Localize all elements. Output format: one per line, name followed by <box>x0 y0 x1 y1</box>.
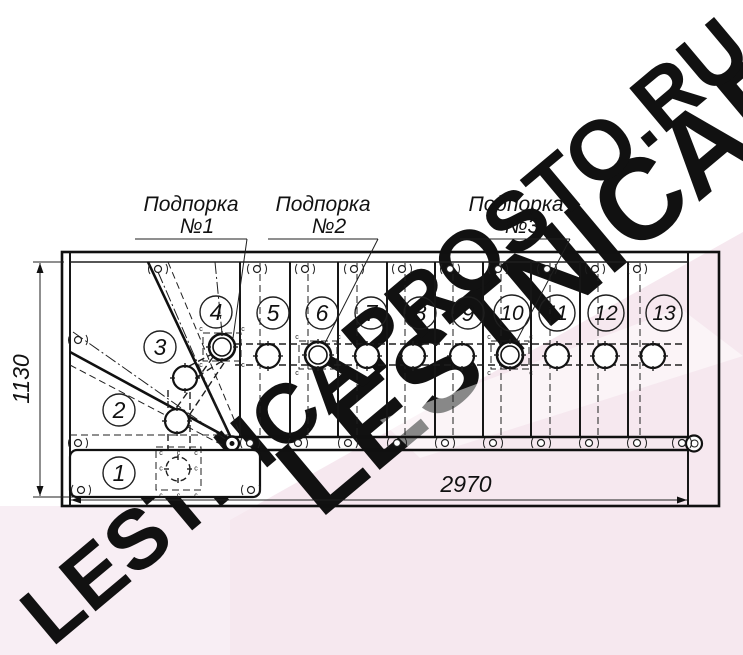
svg-text:2: 2 <box>112 397 126 423</box>
c-mark: c <box>194 493 198 500</box>
c-mark: c <box>487 334 491 341</box>
c-mark: c <box>529 370 533 377</box>
c-mark: c <box>159 466 163 473</box>
width-dimension-value: 2970 <box>439 471 491 497</box>
c-mark: c <box>295 334 299 341</box>
svg-text:4: 4 <box>210 299 223 325</box>
c-mark: c <box>177 493 181 500</box>
svg-text:10: 10 <box>500 302 524 325</box>
c-mark: c <box>337 370 341 377</box>
c-mark: c <box>487 370 491 377</box>
c-mark: c <box>159 493 163 500</box>
svg-text:9: 9 <box>462 300 475 326</box>
svg-text:Подпорка: Подпорка <box>468 193 563 216</box>
svg-text:№3: №3 <box>505 215 540 238</box>
c-mark: c <box>337 334 341 341</box>
c-mark: c <box>194 466 198 473</box>
staircase-plan-page: LESTNICAPROSTO.RU LESTNICAPROSTO.RU <box>0 0 743 655</box>
c-mark: c <box>241 362 245 369</box>
c-mark: c <box>159 450 163 457</box>
svg-text:5: 5 <box>267 300 280 326</box>
c-mark: c <box>199 326 203 333</box>
height-dimension-value: 1130 <box>8 354 34 404</box>
svg-text:№1: №1 <box>180 215 214 238</box>
c-mark: c <box>241 326 245 333</box>
staircase-plan-drawing: LESTNICAPROSTO.RU LESTNICAPROSTO.RU <box>0 0 743 655</box>
svg-text:6: 6 <box>316 300 329 326</box>
c-mark: c <box>295 370 299 377</box>
svg-text:7: 7 <box>365 300 379 326</box>
c-mark: c <box>199 362 203 369</box>
svg-text:11: 11 <box>546 302 568 325</box>
c-mark: c <box>529 334 533 341</box>
svg-text:3: 3 <box>154 334 167 360</box>
svg-text:Подпорка: Подпорка <box>275 193 370 216</box>
svg-text:13: 13 <box>652 302 676 325</box>
c-mark: c <box>194 450 198 457</box>
svg-text:1: 1 <box>113 460 126 486</box>
svg-text:Подпорка: Подпорка <box>143 193 238 216</box>
svg-text:12: 12 <box>594 302 618 325</box>
c-mark: c <box>177 450 181 457</box>
svg-text:№2: №2 <box>312 215 347 238</box>
svg-text:8: 8 <box>414 300 427 326</box>
